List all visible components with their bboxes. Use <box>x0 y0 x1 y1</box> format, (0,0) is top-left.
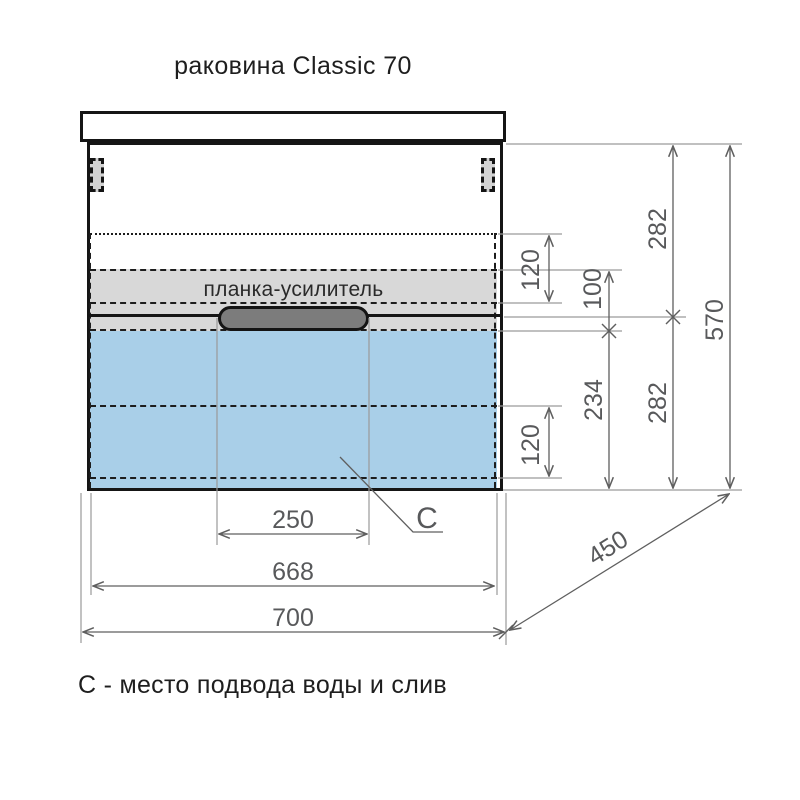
wall-hanger-left <box>90 158 104 192</box>
dim-120-lower-value: 120 <box>517 424 545 466</box>
dim-450-line <box>510 494 729 630</box>
tick-282-split <box>666 310 680 324</box>
tick-234-split-cross <box>602 324 616 338</box>
inner-zone-left-dashed-line <box>89 233 91 488</box>
drawing-title: раковина Classic 70 <box>80 52 506 81</box>
dim-700-value: 700 <box>272 604 314 632</box>
band-inner-dashed-line <box>90 302 497 304</box>
drawer-bottom-dashed-line <box>90 477 497 479</box>
dim-668-value: 668 <box>272 558 314 586</box>
dim-120-upper-value: 120 <box>517 249 545 291</box>
inner-zone-right-dashed-line <box>494 233 496 488</box>
tick-282-split-cross <box>666 310 680 324</box>
wall-hanger-right <box>481 158 495 192</box>
tick-700-right <box>499 625 513 639</box>
countertop-sink-outline <box>80 111 506 142</box>
mount-zone-dotted-line <box>90 233 497 235</box>
dim-250-value: 250 <box>272 506 314 534</box>
dim-234-value: 234 <box>580 379 608 421</box>
drawer-front-highlight <box>90 331 497 488</box>
drawer-handle <box>218 306 369 331</box>
technical-drawing: раковина Classic 70 планка-усилитель <box>0 0 800 800</box>
reinforcement-band-label: планка-усилитель <box>90 278 497 302</box>
tick-234-split <box>602 324 616 338</box>
dim-570-value: 570 <box>701 299 729 341</box>
dim-282-lower-value: 282 <box>644 382 672 424</box>
legend-caption: С - место подвода воды и слив <box>78 671 447 700</box>
drawer-mid-dashed-line <box>90 405 497 407</box>
dim-450-value: 450 <box>583 525 633 571</box>
dim-282-upper-value: 282 <box>644 208 672 250</box>
dim-100-value: 100 <box>579 268 607 310</box>
point-c-label: C <box>416 502 438 535</box>
